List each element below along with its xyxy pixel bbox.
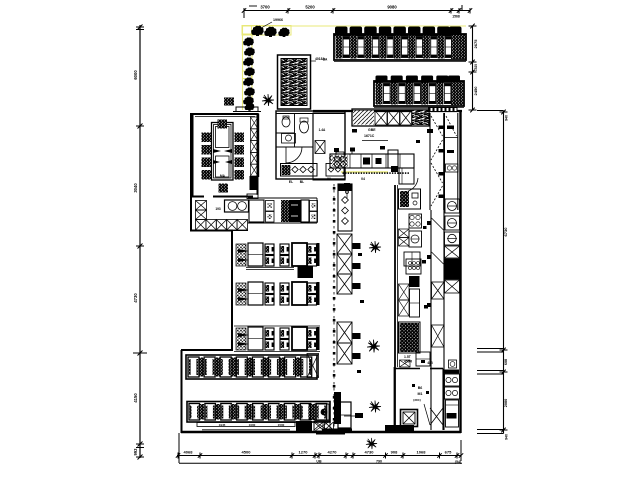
svg-text:1500: 1500 — [278, 423, 285, 427]
svg-text:4068: 4068 — [184, 449, 194, 454]
svg-text:4270: 4270 — [328, 449, 338, 454]
svg-text:193: 193 — [215, 207, 221, 211]
svg-text:UB: UB — [316, 459, 322, 463]
svg-text:488: 488 — [427, 361, 433, 365]
svg-text:4150: 4150 — [133, 393, 138, 403]
svg-text:1270: 1270 — [299, 449, 309, 454]
svg-text:1568: 1568 — [452, 15, 460, 19]
svg-text:2450: 2450 — [473, 86, 478, 96]
svg-text:19966: 19966 — [273, 18, 283, 22]
svg-text:1945: 1945 — [219, 423, 226, 427]
svg-text:(30C): (30C) — [413, 398, 421, 402]
svg-text:GBE: GBE — [368, 128, 376, 132]
svg-text:908: 908 — [391, 449, 398, 454]
svg-text:1000: 1000 — [249, 423, 256, 427]
svg-text:EL: EL — [289, 180, 293, 184]
svg-text:1525: 1525 — [474, 64, 478, 71]
svg-text:940: 940 — [505, 115, 509, 121]
svg-text:B6: B6 — [418, 386, 423, 390]
svg-text:2675: 2675 — [473, 39, 478, 49]
svg-text:4500: 4500 — [242, 449, 252, 454]
svg-text:4730: 4730 — [365, 449, 375, 454]
svg-text:608: 608 — [504, 359, 508, 365]
svg-text:M1: M1 — [418, 392, 423, 396]
svg-text:04: 04 — [361, 177, 365, 181]
svg-text:9080: 9080 — [387, 5, 397, 10]
svg-text:BL: BL — [300, 180, 304, 184]
svg-text:1671C: 1671C — [364, 134, 375, 138]
svg-text:3700: 3700 — [260, 5, 270, 10]
svg-text:MA: MA — [220, 174, 226, 178]
svg-text:790: 790 — [376, 459, 382, 463]
svg-text:1.4A: 1.4A — [319, 128, 326, 132]
svg-text:4730: 4730 — [133, 293, 138, 303]
svg-text:X0: X0 — [327, 177, 331, 181]
svg-text:940: 940 — [505, 434, 509, 440]
svg-text:993: 993 — [133, 448, 138, 456]
svg-text:6000: 6000 — [133, 70, 138, 80]
svg-text:2080: 2080 — [504, 399, 508, 407]
svg-text:BA: BA — [323, 58, 328, 62]
svg-text:1.5T: 1.5T — [404, 355, 412, 359]
svg-text:675: 675 — [445, 449, 452, 454]
svg-text:1068: 1068 — [417, 449, 427, 454]
svg-text:6730: 6730 — [503, 227, 508, 237]
svg-text:5200: 5200 — [305, 5, 315, 10]
svg-text:3040: 3040 — [133, 183, 138, 193]
